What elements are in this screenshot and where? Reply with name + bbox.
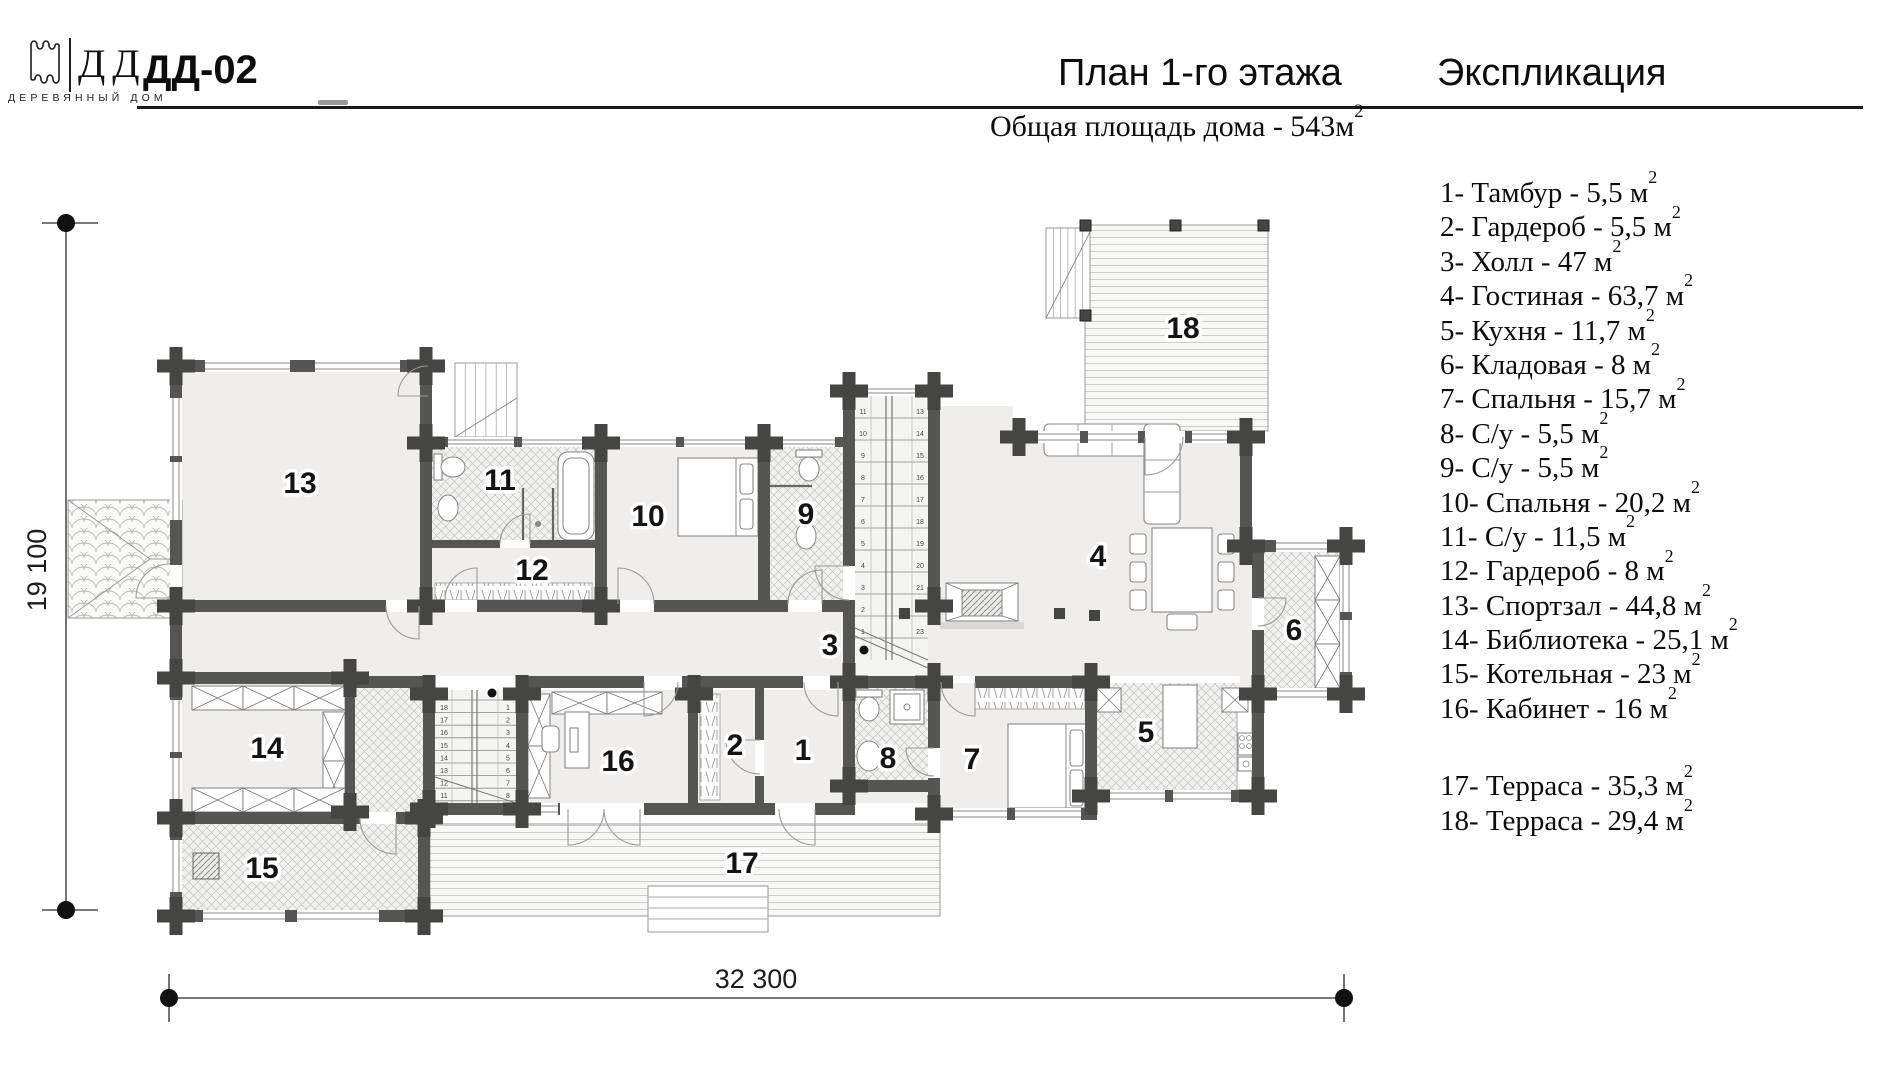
window-marker: [1268, 688, 1330, 700]
room-label-18: 18: [1166, 312, 1199, 345]
shower-inner: [894, 694, 920, 720]
wardrobe-strip: [435, 583, 592, 600]
log-joint-post: [1240, 527, 1253, 565]
wardrobe-strip: [975, 687, 1085, 709]
room-floor: [1240, 552, 1252, 688]
room-label-6: 6: [1286, 614, 1303, 647]
chair: [1130, 562, 1146, 582]
window-marker: [1340, 562, 1352, 612]
log-joint-post: [928, 587, 941, 625]
stair-tread-number: 12: [440, 781, 448, 788]
dim-label-height: 19 100: [22, 529, 52, 612]
room-label-12: 12: [515, 554, 548, 587]
boiler-unit: [193, 853, 219, 879]
wardrobe-strip: [700, 694, 720, 800]
stair-tread-number: 20: [916, 563, 924, 570]
log-joint-post: [928, 663, 941, 701]
wall-segment: [516, 676, 644, 688]
log-joint-post: [170, 347, 183, 385]
stair-tread-number: 15: [440, 743, 448, 750]
dim-marker: [1335, 989, 1353, 1007]
log-joint-post: [516, 675, 529, 713]
chair: [1130, 590, 1146, 610]
window-marker: [170, 758, 182, 804]
log-joint-post: [843, 663, 856, 701]
log-joint-post: [170, 659, 183, 697]
stair-tread-number: 17: [916, 497, 924, 504]
room-label-16: 16: [601, 745, 634, 778]
log-joint-post: [420, 424, 433, 462]
wall-segment: [928, 396, 940, 612]
room-label-1: 1: [795, 734, 812, 767]
terrace-post: [1258, 220, 1269, 231]
section-dot: [860, 646, 869, 655]
room-label-4: 4: [1090, 540, 1107, 573]
wall-segment: [182, 672, 355, 684]
chair: [1130, 534, 1146, 554]
window-marker: [170, 840, 182, 892]
log-joint-post: [170, 587, 183, 625]
stair-tread-number: 15: [916, 453, 924, 460]
room-label-9: 9: [798, 498, 815, 531]
wall-segment: [975, 676, 1085, 688]
room-label-13: 13: [283, 467, 316, 500]
column-post: [1054, 608, 1065, 619]
stair-tread-number: 19: [916, 541, 924, 548]
log-joint-post: [1240, 418, 1253, 456]
door-gap: [788, 600, 822, 612]
window-marker: [205, 360, 290, 372]
door-gap: [618, 600, 654, 612]
stair-tread-number: 9: [861, 453, 865, 460]
kitchen-island: [1163, 685, 1197, 748]
stair-tread-number: 16: [916, 475, 924, 482]
log-joint-post: [1252, 777, 1265, 815]
log-joint-post: [758, 424, 771, 462]
log-joint-post: [1340, 675, 1353, 713]
monitor: [570, 728, 578, 752]
floors-layer: [68, 225, 1340, 932]
log-joint-post: [928, 795, 941, 833]
stair-tread-number: 3: [861, 585, 865, 592]
room-label-10: 10: [631, 500, 664, 533]
window-marker: [1276, 540, 1328, 552]
room-label-3: 3: [822, 629, 839, 662]
wall-segment: [420, 368, 432, 612]
window-marker: [170, 462, 182, 520]
door-gap: [843, 566, 855, 600]
window-marker: [170, 700, 182, 752]
log-joint-post: [1013, 418, 1026, 456]
stair-tread-number: 6: [506, 768, 510, 775]
room-label-8: 8: [880, 742, 897, 775]
stair-tread-number: 18: [440, 705, 448, 712]
log-joint-post: [595, 424, 608, 462]
bathtub-inner: [563, 458, 589, 534]
fireplace-core: [962, 590, 1002, 616]
log-joint-post: [344, 793, 357, 831]
kitchen-sink: [1238, 757, 1254, 771]
stair-tread-number: 13: [916, 409, 924, 416]
stair-tread-number: 2: [861, 607, 865, 614]
stair-tread-number: 7: [861, 497, 865, 504]
stair-tread-number: 18: [916, 519, 924, 526]
toilet-tank: [796, 450, 822, 457]
log-joint-post: [170, 897, 183, 935]
floor-plan-page: { "header": { "logo": { "abbr": "ДД", "c…: [0, 0, 1890, 1080]
room-label-14: 14: [250, 732, 284, 765]
stair-tread-number: 3: [506, 730, 510, 737]
window-marker: [1173, 790, 1231, 802]
window-marker: [522, 437, 588, 447]
stair-tread-number: 8: [506, 793, 510, 800]
window-marker: [315, 360, 400, 372]
sink: [857, 741, 881, 771]
window-marker: [203, 910, 285, 922]
door-gap: [500, 540, 530, 548]
window-marker: [170, 398, 182, 456]
stair-tread-number: 14: [440, 755, 448, 762]
stair-tread-number: 14: [916, 431, 924, 438]
room-label-5: 5: [1138, 716, 1155, 749]
window-marker: [684, 437, 750, 447]
toilet-bowl: [441, 457, 465, 477]
toilet-bowl: [799, 457, 819, 481]
terrace-post: [1080, 310, 1091, 321]
log-joint-post: [170, 799, 183, 837]
door-gap: [1145, 431, 1185, 443]
wall-segment: [595, 443, 607, 600]
window-marker: [1088, 431, 1138, 443]
dim-marker: [57, 214, 75, 232]
stair-tread-number: 1: [861, 629, 865, 636]
window-marker: [775, 437, 835, 447]
room-label-11: 11: [484, 464, 516, 497]
dim-marker: [160, 989, 178, 1007]
stair-tread-number: 5: [861, 541, 865, 548]
hearth: [940, 622, 1024, 629]
column-post: [1089, 610, 1100, 621]
window-marker: [448, 437, 514, 447]
stair-tread-number: 17: [440, 718, 448, 725]
chair: [1218, 562, 1234, 582]
log-joint-post: [344, 659, 357, 697]
stair-tread-number: 13: [440, 768, 448, 775]
chair: [1167, 614, 1197, 630]
column-post: [899, 608, 910, 619]
terrace-steps: [648, 886, 768, 932]
tiled-floor: [355, 688, 423, 812]
room-label-7: 7: [964, 743, 981, 776]
stair-tread-number: 2: [506, 718, 510, 725]
chair: [1218, 590, 1234, 610]
log-joint-post: [928, 372, 941, 410]
stair-tread-number: 4: [861, 563, 865, 570]
log-joint-post: [688, 675, 701, 713]
room-floor: [940, 406, 1013, 676]
dining-table: [1152, 528, 1212, 612]
stair-tread-number: 10: [859, 431, 867, 438]
terrace-post: [1170, 220, 1181, 231]
stair-tread-number: 11: [440, 793, 447, 800]
toilet-tank: [856, 690, 882, 697]
stair-tread-number: 6: [861, 519, 865, 526]
log-joint-post: [595, 587, 608, 625]
log-joint-post: [843, 767, 856, 805]
floor-plan-drawing: 1110987654321131415161718192021222318171…: [0, 0, 1890, 1080]
dim-marker: [57, 901, 75, 919]
pillow: [1070, 730, 1083, 766]
log-joint-post: [1085, 663, 1098, 701]
log-joint-post: [420, 587, 433, 625]
door-gap: [755, 740, 764, 776]
wall-segment: [843, 396, 855, 690]
log-joint-post: [1340, 527, 1353, 565]
room-label-15: 15: [245, 852, 278, 885]
wall-segment: [700, 803, 755, 815]
wall-segment: [1252, 630, 1264, 802]
stair-tread-number: 11: [859, 409, 866, 416]
log-joint-post: [418, 897, 431, 935]
wall-segment: [755, 803, 775, 815]
wall-segment: [758, 443, 770, 600]
log-joint-post: [1252, 675, 1265, 713]
toilet-bowl: [859, 697, 879, 721]
stair-tread-number: 4: [506, 743, 510, 750]
terrace-post: [1080, 220, 1091, 231]
window-marker: [1103, 790, 1165, 802]
stair-tread-number: 5: [506, 755, 510, 762]
log-joint-post: [418, 799, 431, 837]
stair-tread-number: 8: [861, 475, 865, 482]
door-gap: [560, 803, 644, 815]
pillow: [740, 499, 753, 529]
shower-head: [535, 521, 541, 527]
section-dot: [488, 689, 497, 698]
log-joint-post: [423, 675, 436, 713]
dim-label-width: 32 300: [715, 964, 798, 994]
stair-tread-number: 21: [916, 585, 924, 592]
stair-tread-number: 1: [506, 705, 510, 712]
office-chair: [542, 726, 559, 752]
window-marker: [612, 437, 676, 447]
log-joint-post: [843, 372, 856, 410]
stair-tread-number: 7: [506, 781, 510, 788]
room-label-2: 2: [727, 729, 744, 762]
room-label-17: 17: [725, 847, 758, 880]
window-marker: [1340, 620, 1352, 672]
stair-tread-number: 16: [440, 730, 448, 737]
log-joint-post: [1085, 777, 1098, 815]
door-gap: [928, 748, 940, 778]
log-joint-post: [516, 790, 529, 828]
window-marker: [297, 910, 379, 922]
door-gap: [445, 600, 477, 612]
window-marker: [1015, 808, 1081, 820]
pillow: [740, 464, 753, 494]
stair-tread-number: 23: [916, 629, 924, 636]
sink: [438, 495, 458, 521]
